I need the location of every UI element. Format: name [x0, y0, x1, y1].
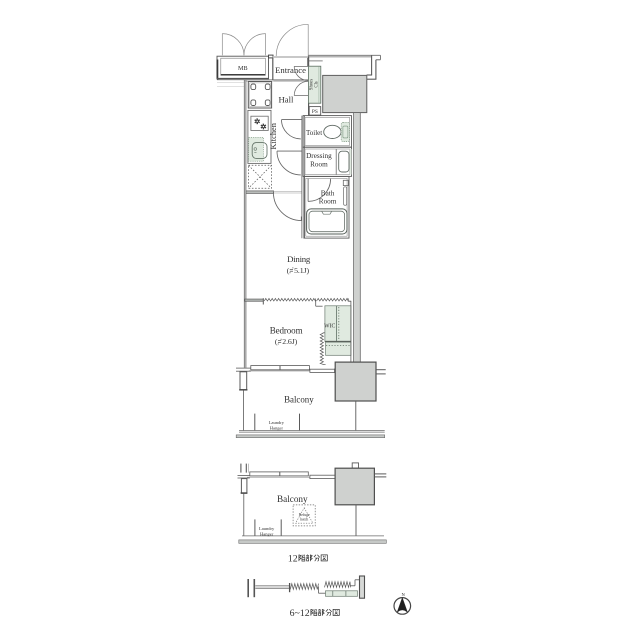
- svg-text:Laundry: Laundry: [269, 420, 285, 425]
- svg-text:Kitchen: Kitchen: [269, 122, 278, 149]
- svg-text:Toilet: Toilet: [306, 129, 322, 137]
- svg-text:12: 12: [288, 553, 298, 564]
- svg-text:5.1J): 5.1J): [294, 266, 309, 275]
- svg-text:Balcony: Balcony: [284, 394, 314, 404]
- svg-text:Dressing: Dressing: [306, 152, 332, 160]
- svg-text:Laundry: Laundry: [259, 526, 275, 531]
- svg-text:Balcony: Balcony: [277, 494, 308, 504]
- svg-text:(: (: [275, 337, 278, 346]
- svg-text:hatch: hatch: [300, 518, 308, 522]
- svg-text:Dining: Dining: [287, 254, 311, 264]
- svg-text:Refuge: Refuge: [299, 513, 310, 517]
- svg-text:Cls: Cls: [314, 81, 319, 87]
- svg-text:(: (: [287, 266, 290, 275]
- svg-text:Bedroom: Bedroom: [270, 325, 303, 335]
- svg-text:Bath: Bath: [321, 190, 335, 198]
- svg-text:Room: Room: [310, 160, 328, 168]
- svg-text:MB: MB: [238, 65, 248, 72]
- svg-text:Hanger: Hanger: [270, 425, 284, 430]
- svg-text:Hall: Hall: [279, 94, 295, 104]
- svg-text:PS: PS: [312, 109, 318, 115]
- svg-text:6~12: 6~12: [290, 608, 310, 619]
- svg-text:Room: Room: [319, 197, 337, 205]
- svg-text:2.6J): 2.6J): [282, 337, 297, 346]
- svg-text:WIC: WIC: [324, 323, 335, 329]
